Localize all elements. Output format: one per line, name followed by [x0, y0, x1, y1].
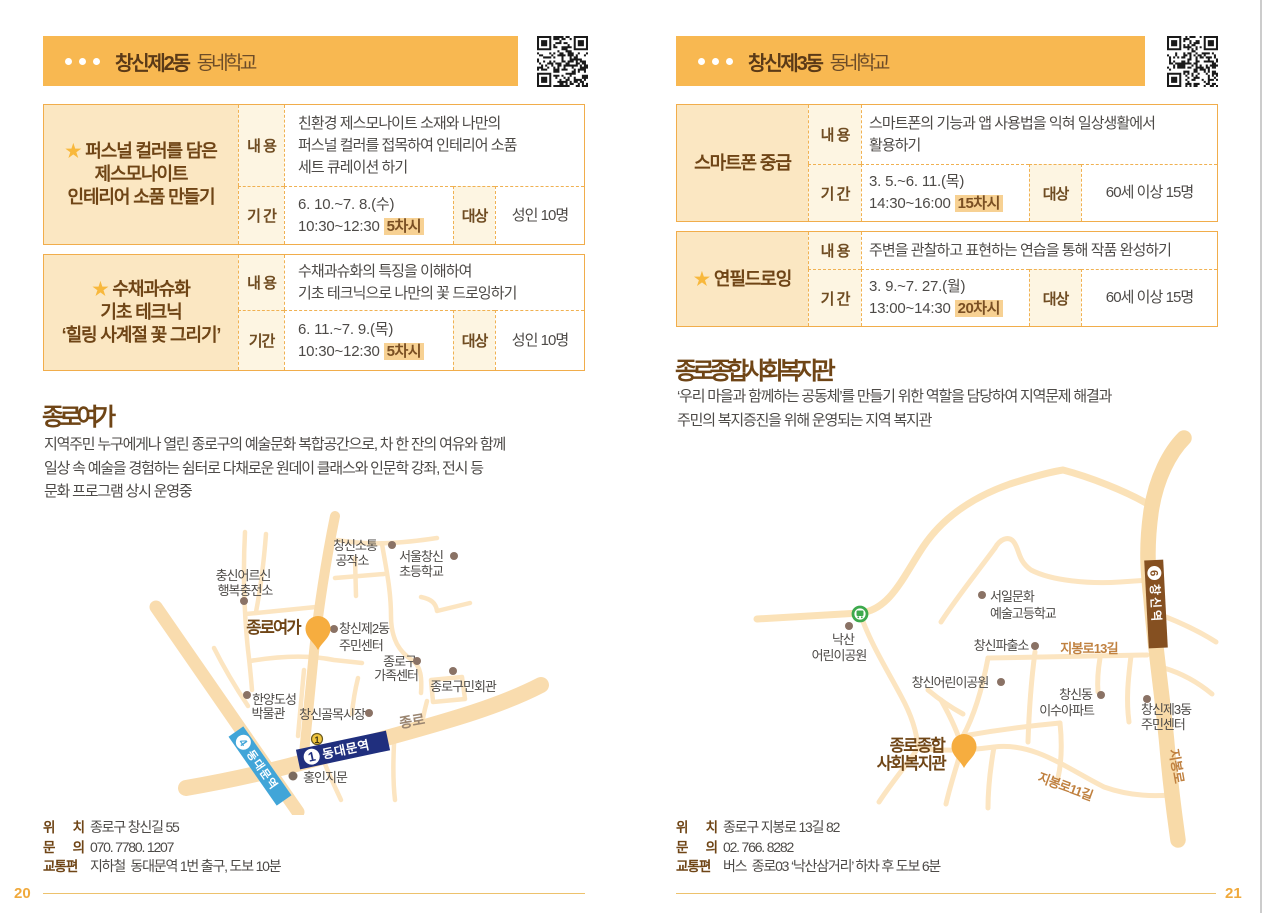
svg-text:서일문화: 서일문화 [990, 589, 1035, 604]
svg-text:낙산: 낙산 [832, 632, 855, 647]
svg-text:지봉로13길: 지봉로13길 [1060, 641, 1118, 656]
svg-text:초등학교: 초등학교 [399, 564, 444, 579]
svg-text:박물관: 박물관 [252, 706, 286, 721]
svg-text:공작소: 공작소 [336, 553, 370, 568]
svg-text:어린이공원: 어린이공원 [812, 648, 867, 663]
svg-text:종로종합: 종로종합 [890, 735, 946, 755]
svg-text:가족센터: 가족센터 [374, 668, 418, 683]
svg-text:행복충전소: 행복충전소 [218, 583, 274, 598]
svg-text:창신제2동: 창신제2동 [339, 621, 390, 636]
svg-text:이수아파트: 이수아파트 [1039, 703, 1095, 718]
svg-text:한양도성: 한양도성 [252, 692, 296, 707]
svg-text:1: 1 [314, 735, 319, 745]
svg-text:창신골목시장: 창신골목시장 [299, 707, 366, 722]
svg-text:창신어린이공원: 창신어린이공원 [912, 675, 989, 690]
svg-text:창신파출소: 창신파출소 [974, 638, 1030, 653]
svg-text:주민센터: 주민센터 [1141, 717, 1185, 732]
svg-text:충신어르신: 충신어르신 [216, 568, 271, 583]
svg-text:종로구: 종로구 [383, 654, 417, 669]
svg-text:창신제3동: 창신제3동 [1141, 702, 1192, 717]
svg-text:종로여가: 종로여가 [246, 618, 301, 637]
svg-text:사회복지관: 사회복지관 [877, 754, 947, 773]
svg-text:종로구민회관: 종로구민회관 [430, 679, 497, 694]
svg-text:6: 6 [1147, 570, 1159, 577]
svg-text:창신역: 창신역 [1147, 584, 1164, 624]
svg-text:주민센터: 주민센터 [339, 638, 383, 653]
svg-text:창신소통: 창신소통 [333, 538, 378, 553]
svg-text:예술고등학교: 예술고등학교 [990, 606, 1057, 621]
svg-text:창신동: 창신동 [1059, 687, 1093, 702]
svg-text:홍인지문: 홍인지문 [303, 770, 348, 785]
svg-text:서울창신: 서울창신 [399, 549, 443, 564]
